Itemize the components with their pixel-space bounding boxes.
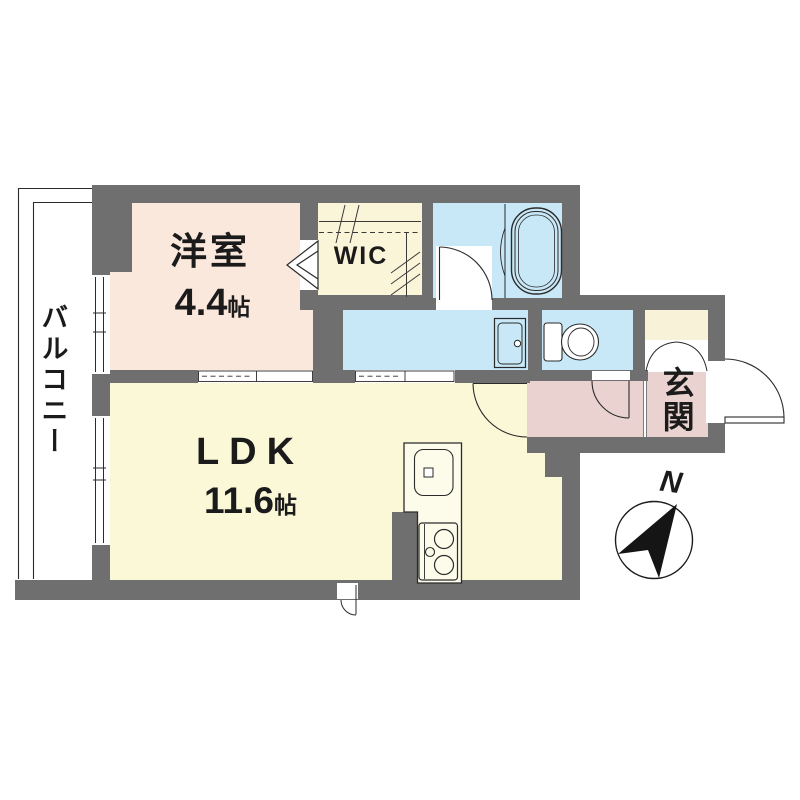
ldk-size-unit: 帖 [274,492,297,518]
wall-top [92,185,580,203]
shoe-cabinet [645,310,708,340]
wall-bath-right [562,185,580,310]
room-washroom [343,310,528,372]
balcony-label: バルコニー [38,303,66,483]
wall-under-washroom [343,370,530,383]
genkan-label: 玄関 [659,366,693,440]
wall-washroom-toilet [528,310,542,372]
western-room-label: 洋室 [110,233,310,272]
wall-left [92,188,110,580]
wall-western-ldk [108,370,343,383]
ldk-label: LDK [150,433,350,473]
wic-label: WIC [330,243,392,269]
ldk-size: 11.6帖 [148,482,353,521]
wall-right [708,310,725,453]
wall-toilet-shoe [633,310,645,372]
floorplan-canvas: バルコニー 洋室 4.4帖 WIC LDK 11.6帖 玄関 N [0,0,800,800]
wall-bath-bottom [422,298,582,310]
ldk-size-value: 11.6 [204,480,274,521]
wall-wic-bath [422,203,433,298]
room-toilet [542,310,633,372]
wall-under-toilet [530,370,648,381]
wall-ldk-right [562,453,580,600]
wall-kitchen-stub [392,512,417,600]
western-room-size-value: 4.4 [175,282,228,324]
entry-door-swing [725,359,784,423]
room-bathroom [433,203,562,300]
western-room-size: 4.4帖 [110,284,315,324]
hallway [527,381,645,437]
wall-bottom [15,580,580,600]
compass-north-label: N [658,466,684,500]
western-room-size-unit: 帖 [227,294,250,320]
wall-extension-top [578,295,725,310]
compass-icon [616,502,693,579]
